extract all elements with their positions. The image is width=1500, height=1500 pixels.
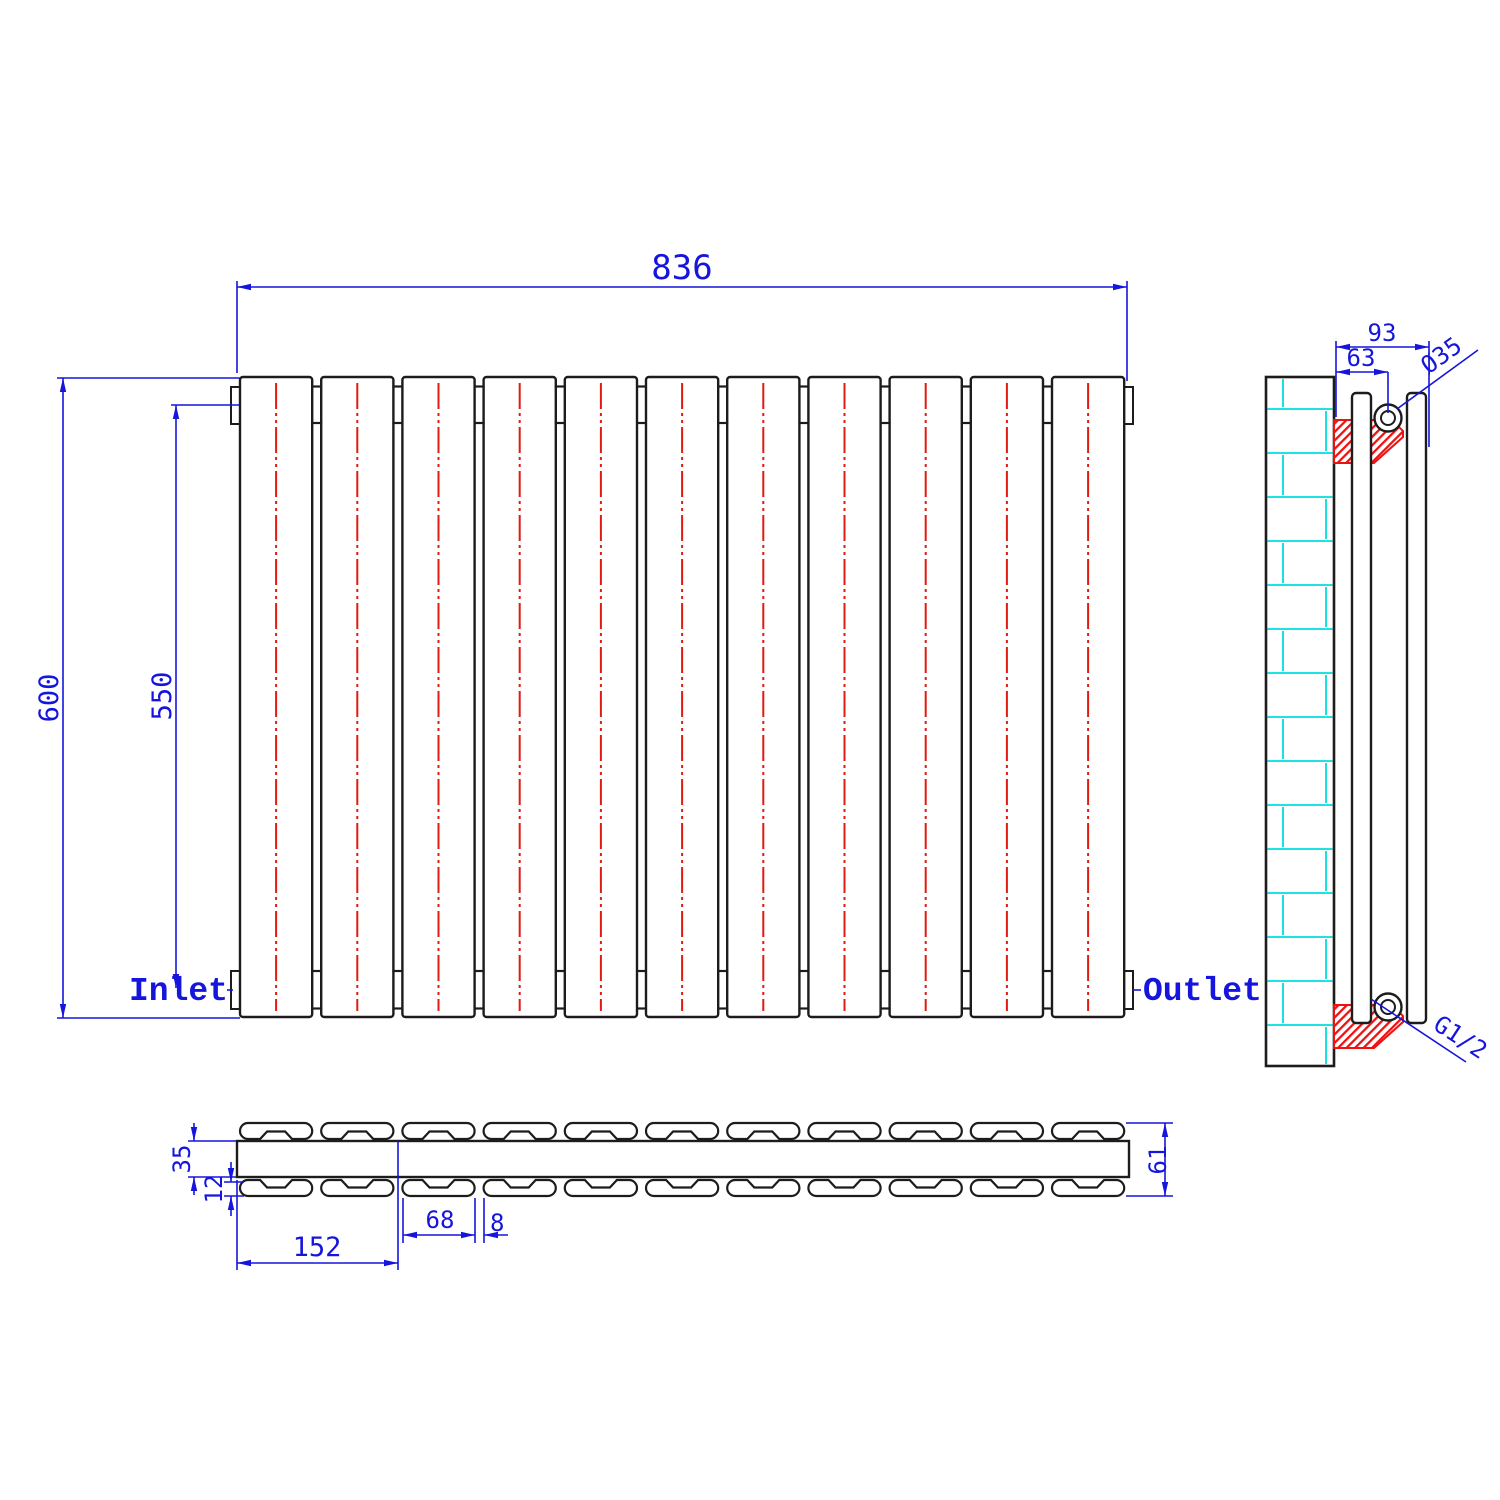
bracket-hole-top-inner: [1381, 411, 1395, 425]
drawing-canvas: 836 600 550 Inlet Outlet 93 63 Ø35: [0, 0, 1500, 1500]
panel-section-front: [321, 1123, 393, 1139]
panel-section-front: [565, 1123, 637, 1139]
radiator-technical-drawing: 836 600 550 Inlet Outlet 93 63 Ø35: [0, 0, 1500, 1500]
dim-text-hole-offset: 63: [1347, 344, 1376, 372]
front-view: 836 600 550 Inlet Outlet: [34, 248, 1262, 1018]
dim-text-hole-diameter: Ø35: [1416, 331, 1468, 379]
panel-section-front: [971, 1123, 1043, 1139]
dim-text-depth: 93: [1368, 319, 1397, 347]
outlet-label: Outlet: [1143, 973, 1262, 1010]
dim-text-panel-thickness: 12: [200, 1175, 228, 1204]
panel-section-rear: [727, 1180, 799, 1196]
panel-section-rear: [402, 1180, 474, 1196]
panel-section-rear: [971, 1180, 1043, 1196]
plan-view: 35 12 152 68 8 61: [168, 1123, 1173, 1270]
dim-text-thread: G1/2: [1428, 1010, 1492, 1065]
panel-section-front: [890, 1123, 962, 1139]
panel-section-front: [240, 1123, 312, 1139]
inlet-label: Inlet: [129, 973, 228, 1010]
panel-section-rear: [808, 1180, 880, 1196]
dim-text-panel-width: 68: [426, 1206, 455, 1234]
dim-text-connection-height: 550: [147, 672, 178, 721]
dim-text-width: 836: [651, 248, 712, 288]
panel-section-rear: [1052, 1180, 1124, 1196]
panel-section-front: [484, 1123, 556, 1139]
panel-section-rear: [565, 1180, 637, 1196]
dim-text-height: 600: [34, 674, 65, 723]
panel-section-rear: [240, 1180, 312, 1196]
panel-section-rear: [321, 1180, 393, 1196]
header-tube-plan: [237, 1141, 1129, 1177]
panel-section-front: [808, 1123, 880, 1139]
dim-text-header-depth: 35: [168, 1145, 196, 1174]
panel-centerlines: [276, 383, 1088, 1011]
panel-section-front: [646, 1123, 718, 1139]
panel-section-rear: [646, 1180, 718, 1196]
panel-section-front: [1052, 1123, 1124, 1139]
side-view: 93 63 Ø35 G1/2: [1266, 319, 1492, 1066]
dim-text-total-depth: 61: [1144, 1146, 1172, 1175]
panel-section-front: [402, 1123, 474, 1139]
panel-section-rear: [890, 1180, 962, 1196]
dim-text-two-panel-pitch: 152: [293, 1232, 342, 1263]
panel-section-rear: [484, 1180, 556, 1196]
dim-text-panel-gap: 8: [490, 1209, 504, 1237]
wall: [1266, 377, 1334, 1066]
panel-profile-front: [1352, 393, 1371, 1023]
panel-section-front: [727, 1123, 799, 1139]
panel-profile-rear: [1407, 393, 1426, 1023]
